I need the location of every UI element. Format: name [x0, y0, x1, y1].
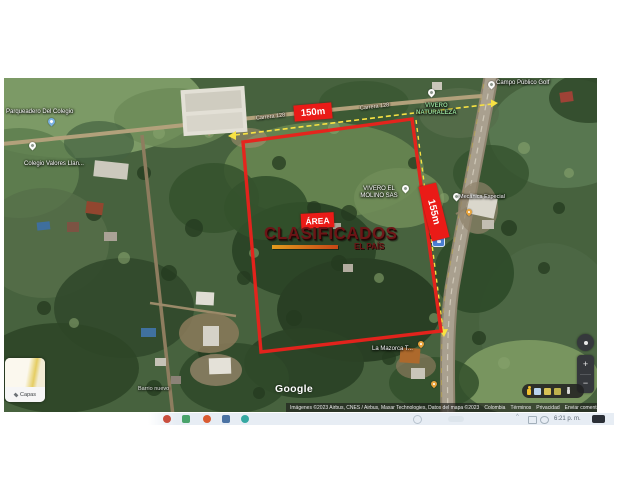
- poi-label-molino[interactable]: VIVERO EL MOLINO SAS: [356, 186, 402, 200]
- poi-label-mecanica[interactable]: Mecánica Especial: [459, 194, 505, 201]
- taskbar-button[interactable]: [448, 416, 464, 422]
- attribution-imagery: Imágenes ©2023 Airbus, CNES / Airbus, Ma…: [290, 405, 479, 411]
- google-logo: Google: [275, 383, 313, 395]
- screenshot: Parqueadero Del Colegio Colegio Valores …: [0, 0, 640, 480]
- layers-label: Capas: [20, 392, 36, 398]
- taskbar-search-icon[interactable]: [413, 415, 422, 424]
- tray-chevron-icon[interactable]: ^: [516, 414, 519, 420]
- street-view-bar[interactable]: [522, 384, 584, 398]
- tray-icon-1[interactable]: [528, 416, 537, 424]
- vivero-naturaleza-line2: NATURALEZA: [416, 110, 457, 117]
- poi-label-golf[interactable]: Campo Público Golf: [496, 80, 549, 87]
- taskbar-app-icon-green[interactable]: [182, 415, 190, 423]
- layers-thumbnail: [5, 358, 45, 387]
- attribution-link-comentarios[interactable]: Enviar comentarios: [565, 405, 597, 411]
- tray-icon-2[interactable]: [540, 416, 549, 424]
- poi-label-parqueadero[interactable]: Parqueadero Del Colegio: [6, 109, 73, 116]
- area-label-barrio: Barrio nuevo: [138, 386, 169, 393]
- coverage-square-olive[interactable]: [554, 388, 561, 395]
- taskbar-app-icon-red[interactable]: [163, 415, 171, 423]
- my-location-button[interactable]: [577, 334, 594, 351]
- zoom-in-button[interactable]: +: [577, 355, 594, 374]
- attribution-link-terminos[interactable]: Términos: [510, 405, 531, 411]
- attribution-link-privacidad[interactable]: Privacidad: [536, 405, 559, 411]
- pegman-icon[interactable]: [527, 386, 531, 396]
- taskbar-clock[interactable]: 6:21 p. m.: [554, 416, 581, 422]
- person-icon: [566, 387, 571, 396]
- taskbar-app-icon-teal[interactable]: [241, 415, 249, 423]
- poi-label-mazorca[interactable]: La Mazorca T...: [372, 346, 413, 353]
- taskbar-app-icon-orange[interactable]: [203, 415, 211, 423]
- taskbar-dark-icon[interactable]: [592, 415, 605, 423]
- satellite-imagery: [4, 78, 597, 412]
- layers-widget[interactable]: Capas: [5, 358, 45, 402]
- taskbar: ^ 6:21 p. m.: [148, 413, 614, 425]
- attribution-link-colombia[interactable]: Colombia: [484, 405, 505, 411]
- coverage-square-yellow[interactable]: [544, 388, 551, 395]
- location-dot-icon: [584, 341, 588, 345]
- taskbar-app-icon-blue[interactable]: [222, 415, 230, 423]
- attribution-bar: Imágenes ©2023 Airbus, CNES / Airbus, Ma…: [286, 403, 597, 412]
- coverage-square-blue[interactable]: [534, 388, 541, 395]
- area-annotation-label: ÁREA: [301, 212, 335, 229]
- width-measurement-label: 150m: [293, 102, 332, 121]
- poi-label-vivero-naturaleza[interactable]: VIVERO NATURALEZA: [416, 103, 457, 117]
- layers-icon: [14, 392, 19, 397]
- poi-label-colegio[interactable]: Colegio Valores Llan...: [24, 161, 84, 168]
- map-canvas[interactable]: Parqueadero Del Colegio Colegio Valores …: [4, 78, 597, 412]
- molino-line2: MOLINO SAS: [356, 193, 402, 200]
